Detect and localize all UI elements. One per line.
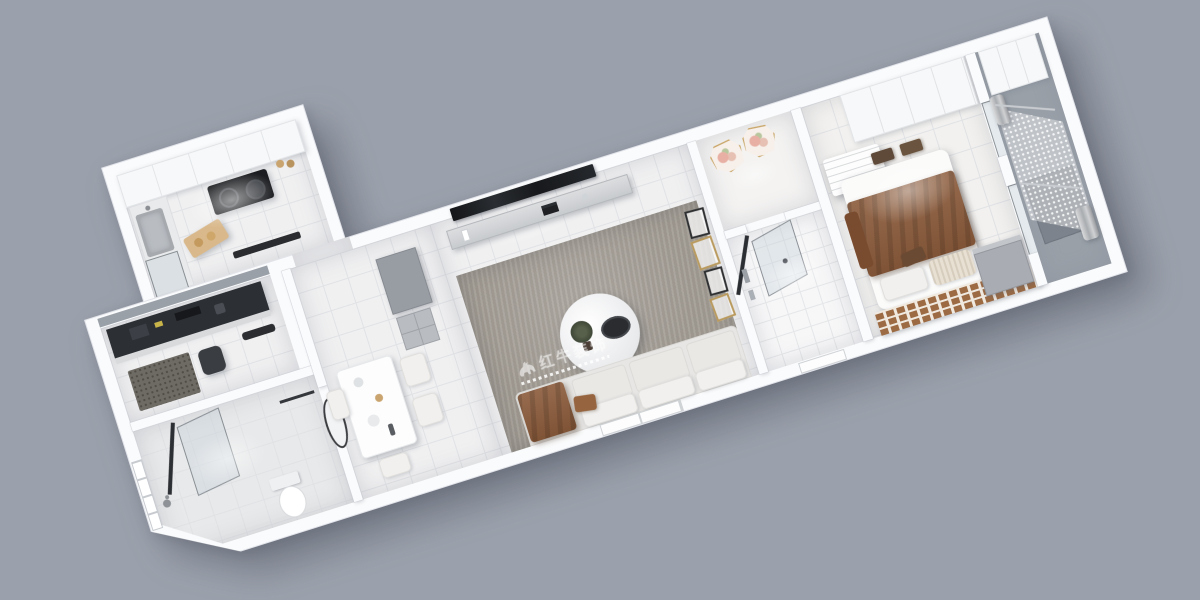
desk-item-yellow (154, 321, 163, 328)
glass-cup (581, 193, 589, 201)
bottle (387, 423, 395, 436)
bread-slice (192, 236, 204, 248)
bull-icon (515, 358, 537, 379)
laptop (129, 324, 150, 341)
desk-item (214, 302, 227, 315)
book-stack (541, 202, 559, 216)
table-item (374, 393, 384, 403)
brown-pillow (573, 394, 597, 413)
render-canvas: { "scene": { "description": "3D axonomet… (0, 0, 1200, 600)
main-floor-slab: 红牛装饰 (84, 16, 1128, 575)
decor-figurine (461, 229, 471, 243)
burner-right-pan (243, 177, 268, 202)
bread-slice (205, 230, 217, 242)
plate (366, 413, 381, 428)
plate (352, 376, 365, 389)
monitor (174, 306, 201, 321)
burner-left (216, 185, 241, 210)
